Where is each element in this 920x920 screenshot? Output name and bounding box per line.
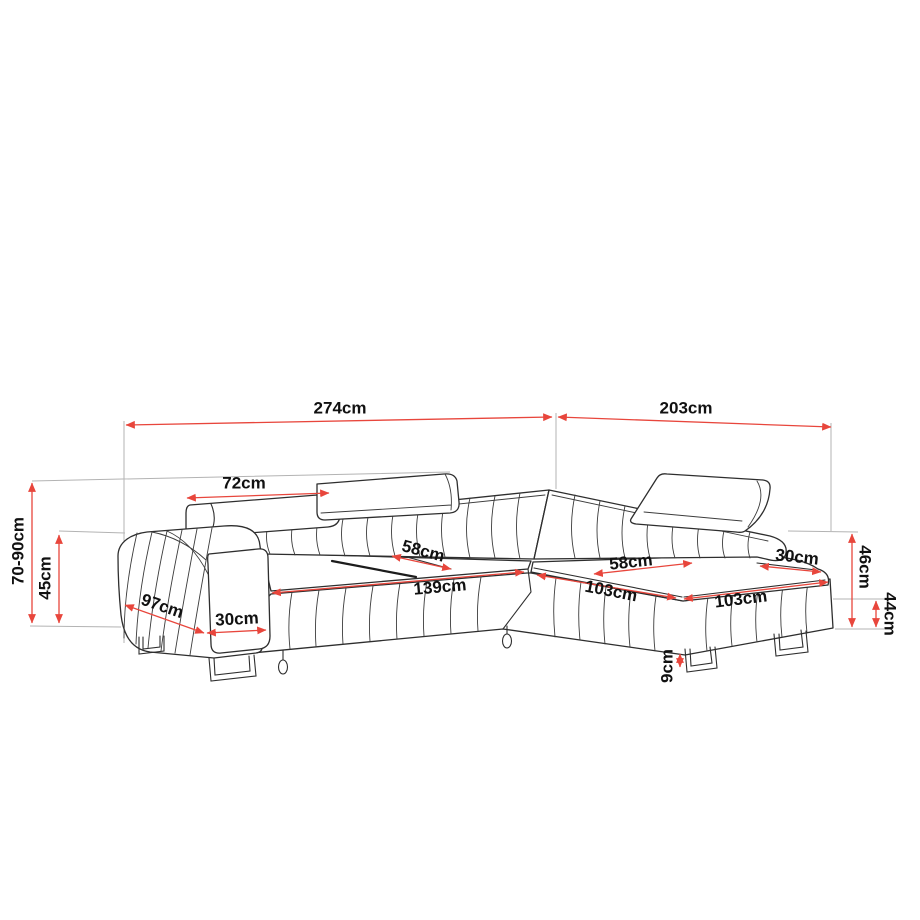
dim-label-armrest-width: 30cm: [215, 608, 259, 629]
armrest-front-panel: [208, 549, 270, 653]
sofa-dimension-diagram: 274cm 203cm 72cm 70-90cm 45cm 97cm 30cm …: [0, 0, 920, 920]
dim-label-base-height: 44cm: [881, 592, 900, 635]
dim-total-width-line: [126, 417, 552, 425]
dim-label-total-width: 274cm: [314, 398, 367, 417]
dim-label-armrest-height: 45cm: [35, 556, 54, 599]
pull-loop-left-ring: [279, 660, 288, 674]
pull-loop-corner-ring: [503, 634, 512, 648]
dim-label-chaise-length: 203cm: [660, 398, 713, 417]
dim-label-leg-height: 9cm: [657, 649, 676, 683]
right-headrest-raised: [631, 474, 771, 532]
dim-label-backrest-height: 46cm: [856, 545, 875, 588]
diagram-canvas: 274cm 203cm 72cm 70-90cm 45cm 97cm 30cm …: [0, 0, 920, 920]
front-left-leg: [209, 655, 256, 681]
dim-chaise-length-line: [558, 417, 831, 427]
dim-label-overall-height: 70-90cm: [8, 517, 27, 585]
middle-headrest-raised: [317, 474, 459, 520]
dim-label-headrest-width: 72cm: [222, 473, 265, 492]
